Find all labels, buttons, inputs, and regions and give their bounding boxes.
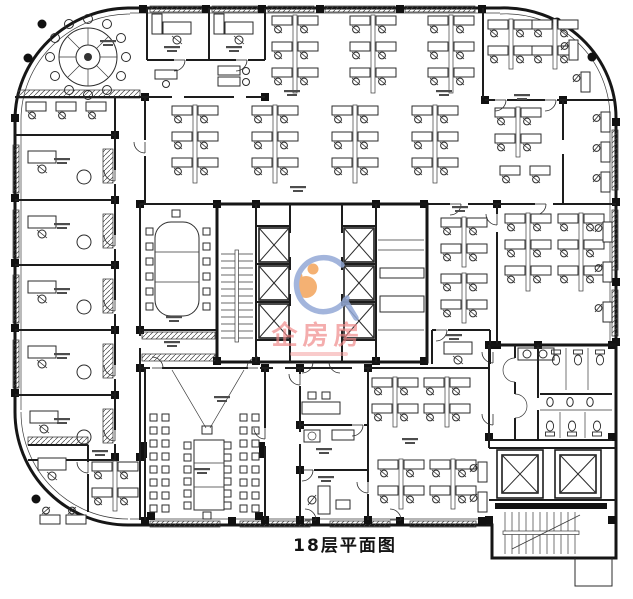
- floor-plan-canvas: 企房房 18层平面图: [0, 0, 633, 599]
- restrooms: [482, 345, 612, 440]
- watermark-subtext: [290, 352, 348, 356]
- conference-room-small: [140, 210, 217, 361]
- left-private-offices: [15, 97, 115, 460]
- bottom-left-zone: [28, 437, 138, 524]
- core-service-room: [378, 240, 424, 330]
- pantry-block: [289, 368, 368, 520]
- bottom-open-office: [305, 377, 487, 520]
- top-open-office: [26, 15, 474, 204]
- round-table-center: [84, 53, 92, 61]
- office-room: [28, 149, 113, 184]
- office-room: [28, 344, 113, 379]
- small-office-room: [432, 330, 490, 364]
- training-room: [145, 357, 265, 520]
- top-right-open-office: [483, 8, 616, 204]
- pantry-sink: [304, 430, 354, 442]
- annex-stairwell: [495, 503, 607, 554]
- drawing-title: 18层平面图: [293, 536, 397, 556]
- urinals: [547, 398, 593, 407]
- office-room: [28, 214, 113, 249]
- core-stairwell: [221, 250, 253, 342]
- annex-elevators: [497, 450, 601, 498]
- annex-core: [482, 345, 616, 554]
- office-room: [28, 279, 113, 314]
- watermark-text: 企房房: [271, 320, 364, 351]
- floor-plan-page: 企房房 18层平面图: [0, 0, 633, 599]
- top-private-offices: [147, 8, 265, 88]
- right-open-office: [432, 204, 612, 364]
